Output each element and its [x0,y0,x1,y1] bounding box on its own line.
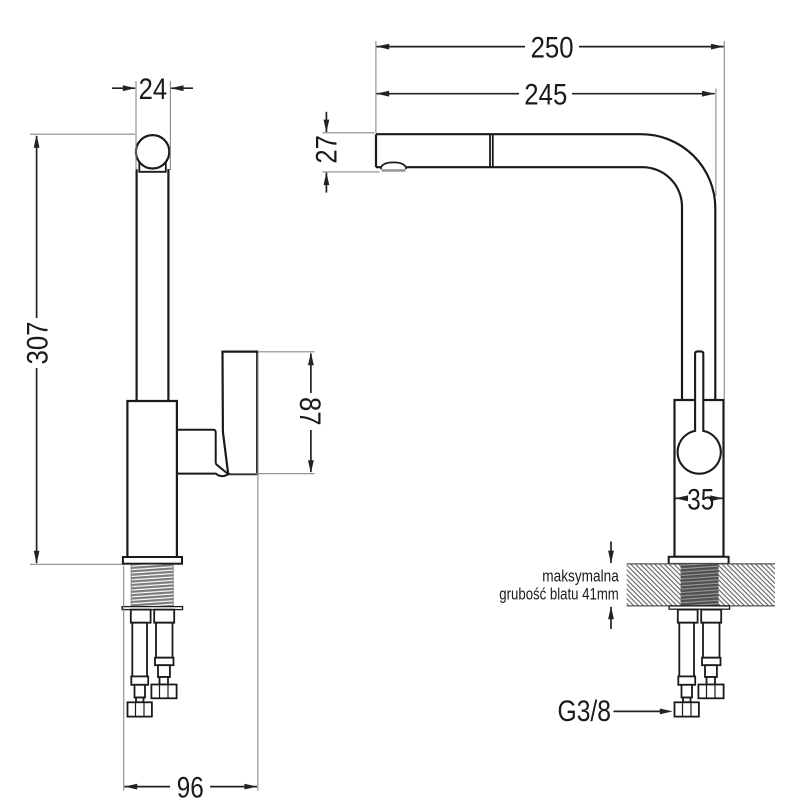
svg-text:307: 307 [22,322,55,365]
svg-text:245: 245 [524,79,567,112]
svg-text:maksymalna: maksymalna [542,568,619,586]
svg-text:87: 87 [293,397,326,426]
svg-text:250: 250 [531,32,574,65]
svg-text:96: 96 [177,771,204,800]
svg-text:grubość blatu 41mm: grubość blatu 41mm [499,586,619,604]
svg-text:G3/8: G3/8 [558,695,612,728]
svg-text:27: 27 [311,135,344,164]
svg-text:24: 24 [139,73,168,106]
svg-text:35: 35 [687,483,714,516]
